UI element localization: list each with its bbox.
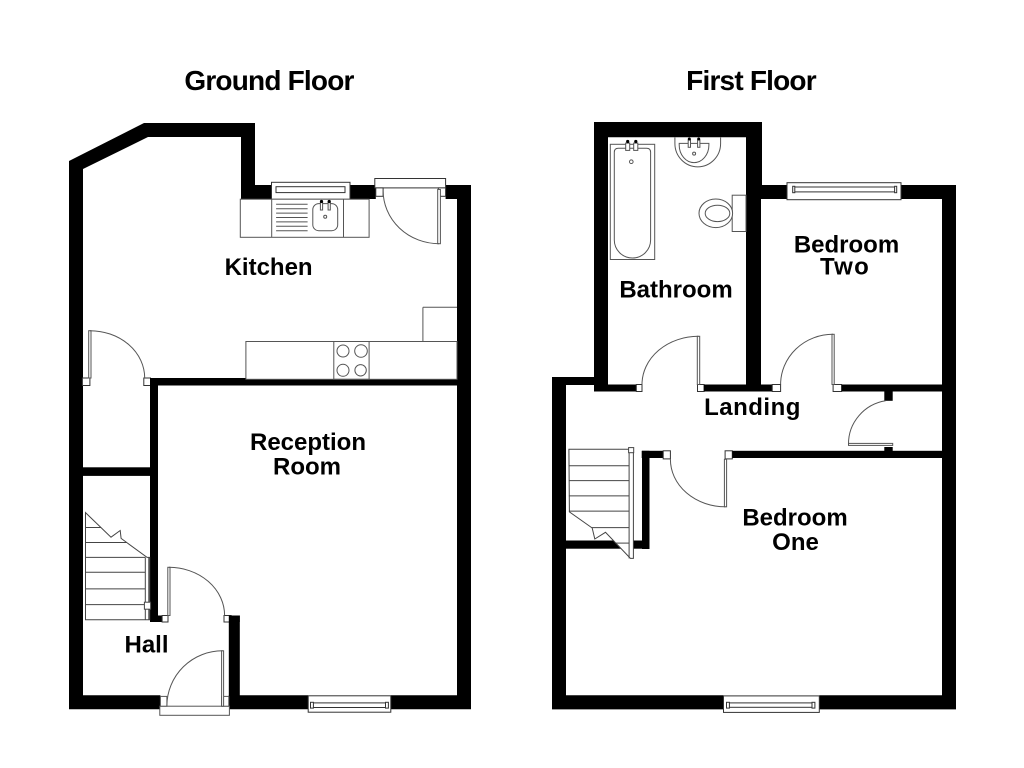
- svg-text:First Floor: First Floor: [686, 65, 817, 96]
- svg-text:Bedroom: Bedroom: [742, 504, 847, 531]
- svg-text:Two: Two: [820, 254, 870, 281]
- svg-text:Hall: Hall: [124, 632, 168, 659]
- svg-text:Kitchen: Kitchen: [225, 254, 313, 281]
- svg-text:Reception: Reception: [250, 429, 366, 456]
- svg-text:One: One: [772, 529, 819, 556]
- svg-text:Ground Floor: Ground Floor: [184, 65, 354, 96]
- svg-text:Room: Room: [273, 454, 341, 481]
- svg-text:Landing: Landing: [704, 394, 801, 421]
- svg-text:Bathroom: Bathroom: [619, 277, 732, 304]
